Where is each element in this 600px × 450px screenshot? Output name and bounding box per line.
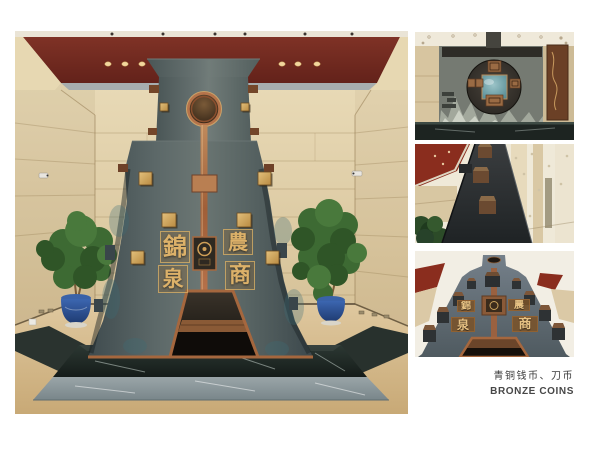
photo-round-coin-relief	[415, 32, 574, 140]
face-seal-character-3: 農	[508, 299, 530, 311]
main-photo-lobby-sculpture: 錦 泉 農 商	[15, 31, 408, 414]
face-seal-character-4: 商	[512, 316, 538, 332]
column-ledge	[459, 164, 472, 173]
face-seal-character-2: 泉	[451, 317, 475, 332]
face-cube-on-strip	[485, 272, 500, 287]
relief-base-counter	[415, 122, 574, 140]
face-notch-lower	[460, 348, 528, 357]
caption-english: BRONZE COINS	[490, 386, 574, 397]
caption-chinese: 青铜钱币、刀币	[490, 367, 574, 382]
relief-stone-wall	[439, 32, 543, 128]
photo-sculpture-low-angle	[415, 144, 574, 243]
main-photo-art	[15, 31, 408, 414]
security-camera-left	[39, 173, 49, 178]
sculpture-handle-cap	[147, 59, 260, 77]
notch-plank	[178, 320, 248, 332]
seal-character-4: 商	[225, 261, 255, 290]
catalog-page: 錦 泉 農 商	[0, 0, 600, 450]
caption: 青铜钱币、刀币 BRONZE COINS	[490, 367, 574, 397]
relief-top-beam	[442, 47, 542, 57]
face-low-angle-art	[415, 251, 574, 357]
seal-character-3: 農	[223, 229, 253, 255]
face-handle-hole	[488, 257, 501, 263]
photo-sculpture-face-low-angle: 錦 泉 農 商	[415, 251, 574, 357]
face-seal-character-1: 錦	[457, 300, 475, 312]
seal-character-2: 泉	[158, 265, 188, 293]
low-angle-art	[415, 144, 574, 243]
security-camera-right	[352, 171, 362, 176]
wooden-door	[547, 45, 568, 120]
seal-character-1: 錦	[160, 231, 190, 263]
round-coin-relief-art	[415, 32, 574, 140]
face-notch-upper	[466, 338, 522, 348]
copper-bracket	[192, 175, 217, 192]
relief-top-strip	[486, 32, 501, 48]
relief-left-wall	[415, 46, 441, 126]
small-white-box	[29, 319, 36, 325]
